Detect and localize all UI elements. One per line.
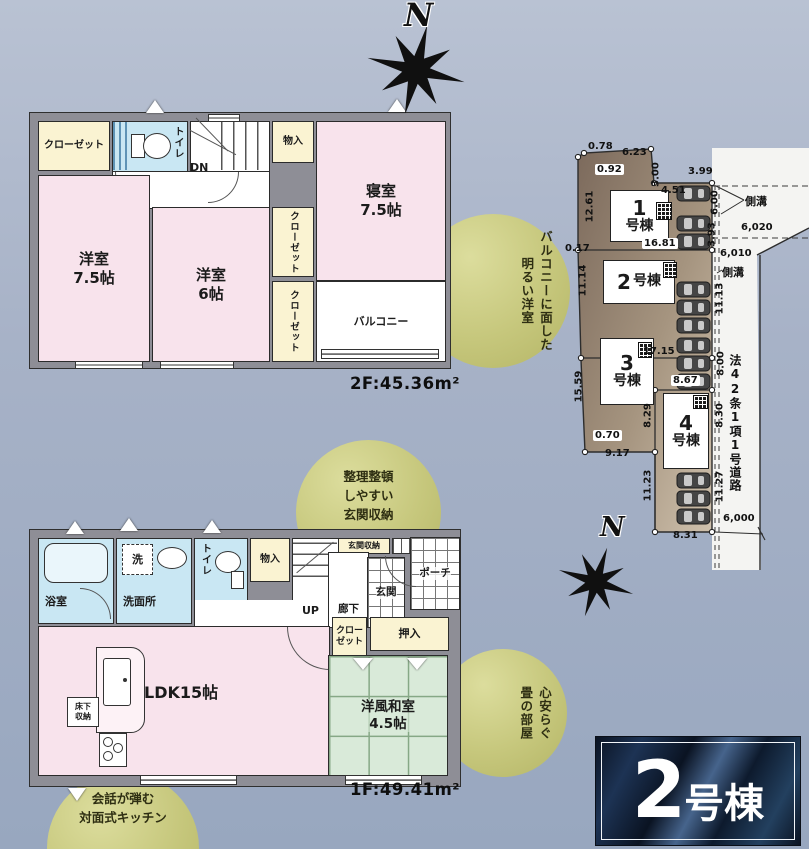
dim-label: 6.23 (622, 147, 647, 158)
callout-kitchen-text: 会話が弾む 対面式キッチン (79, 790, 167, 828)
fridge-icon (103, 658, 131, 706)
floor1-ldk: LDK15帖 床下 収納 (38, 626, 330, 776)
room-label: クローゼット (44, 140, 104, 153)
floor2-plan: クローゼット トイレ 物入 寝室 7.5帖 DN 洋室 7.5帖 洋室 6帖 (30, 113, 450, 368)
dim-label: 0.78 (588, 141, 613, 152)
kitchen-counter-icon (96, 647, 145, 733)
roof-vent-icon (146, 100, 164, 113)
dim-label: 8.29 (643, 399, 654, 433)
floor2-storage: 物入 (272, 121, 314, 163)
room-label: 洋室 6帖 (196, 266, 226, 304)
fridge-handle-icon (123, 678, 127, 682)
compass-north-label: N (600, 512, 625, 543)
floor1-plan: 浴室 洗 洗面所 トイレ 物入 UP 玄関収納 廊下 (30, 530, 460, 786)
burner-icon (103, 751, 113, 761)
floor1-washitsu: 洋風和室 4.5帖 (328, 655, 448, 776)
room-label: 廊下 (338, 603, 359, 616)
toilet-bowl-icon (143, 133, 171, 159)
building-suffix: 号棟 (672, 434, 700, 449)
compass-star (552, 536, 644, 623)
roof-vent-icon (120, 518, 138, 531)
dim-label: 8.31 (673, 530, 698, 541)
stair-steps-icon (221, 122, 269, 170)
building-number: 1 (633, 198, 647, 219)
flyer-canvas: N バルコニーに面した 明るい洋室 整理整頓 しやすい 玄関収納 心安らぐ 畳の… (0, 0, 809, 849)
gutter-label: 側溝 (745, 193, 767, 209)
building-suffix: 号棟 (626, 219, 654, 234)
floor-storage-box: 床下 収納 (67, 697, 99, 727)
room-label: クローゼット (287, 290, 299, 353)
building-hatch-icon (663, 262, 677, 278)
floor2-closet-1: クローゼット (38, 121, 110, 171)
room-label: 床下 収納 (75, 702, 91, 721)
room-label: 物入 (283, 136, 303, 149)
floor1-storage: 物入 (250, 538, 290, 582)
floor1-closet: クロー ゼット (332, 617, 367, 657)
road-edge (757, 228, 809, 570)
room-label: 洋室 7.5帖 (73, 250, 115, 288)
room-label: トイレ (198, 543, 211, 576)
callout-entrance-storage-text: 整理整頓 しやすい 玄関収納 (343, 468, 393, 524)
washing-machine-icon: 洗 (122, 544, 153, 575)
roof-vent-icon (66, 521, 84, 534)
gutter-label: 側溝 (722, 264, 744, 280)
dim-label: 6,020 (741, 222, 773, 233)
dim-label: 12.61 (585, 190, 596, 224)
burner-icon (103, 737, 113, 747)
building-number: 3 (620, 353, 634, 374)
roof-vent-icon (203, 520, 221, 533)
toilet-bowl-icon (215, 551, 241, 573)
floor2-toilet-room: トイレ (112, 121, 188, 173)
dim-label: 0.92 (595, 164, 624, 175)
badge-border (601, 742, 795, 840)
floor1-oshiire: 押入 (370, 617, 449, 651)
floor1-washroom: 洗 洗面所 (116, 538, 192, 624)
callout-bright-room-text: バルコニーに面した 明るい洋室 (517, 227, 555, 355)
room-label: バルコニー (354, 315, 409, 329)
road-name-label: 法42条1項1号道路 (727, 354, 744, 504)
dim-label: 11.23 (643, 469, 654, 503)
dim-label: 3.00 (651, 158, 662, 192)
closet-door-marker-icon (407, 658, 427, 670)
dim-label: 3.99 (688, 166, 713, 177)
dim-label: 0.70 (593, 430, 622, 441)
floor2-closet-2: クローゼット (272, 207, 314, 277)
building-suffix: 号棟 (633, 274, 661, 289)
washer-label: 洗 (132, 553, 143, 567)
shelf-stripes-icon (113, 122, 127, 170)
callout-tatami-text: 心安らぐ 畳の部屋 (516, 663, 554, 763)
dim-label: 0.17 (565, 243, 590, 254)
room-label: ポーチ (419, 567, 451, 580)
floor1-bath: 浴室 (38, 538, 114, 624)
dim-label: 6.00 (710, 186, 721, 220)
dim-label: 11.13 (715, 282, 726, 316)
burner-icon (113, 743, 123, 753)
toilet-tank-icon (231, 571, 244, 589)
room-label: 洋風和室 4.5帖 (361, 699, 415, 733)
floor2-dn-label: DN (190, 161, 208, 174)
room-label: 洗面所 (123, 595, 156, 609)
floor2-balcony: バルコニー (316, 281, 446, 362)
window (140, 775, 237, 785)
building-hatch-icon (656, 202, 672, 220)
closet-door-marker-icon (353, 658, 373, 670)
floor1-up-label: UP (302, 604, 319, 617)
building-hatch-icon (693, 395, 708, 409)
floor2-closet-3: クローゼット (272, 281, 314, 362)
building-number-badge: 2 号棟 (596, 737, 800, 845)
room-label: クローゼット (287, 211, 299, 274)
building-number: 4 (679, 413, 693, 434)
room-label: クロー ゼット (336, 626, 363, 648)
room-label: 浴室 (45, 595, 67, 609)
dim-label: 8.00 (716, 347, 727, 381)
dim-label: 11.27 (715, 470, 726, 504)
bathtub-icon (44, 543, 108, 583)
dim-label: 8.67 (671, 375, 700, 386)
compass-north-label: N (404, 0, 433, 34)
dim-label: 3.93 (707, 218, 718, 252)
vent-icon (68, 788, 86, 801)
dim-label: 16.81 (642, 238, 678, 249)
room-label: 玄関収納 (348, 541, 380, 551)
dim-label: 11.14 (578, 264, 589, 298)
dim-label: 4.51 (661, 185, 686, 196)
ldk-label: LDK15帖 (144, 683, 218, 703)
window (208, 114, 240, 122)
dim-label: 9.17 (605, 448, 630, 459)
dim-label: 8.30 (715, 399, 726, 433)
room-label: 寝室 7.5帖 (360, 182, 402, 220)
window (75, 361, 143, 369)
floor1-toilet: トイレ (194, 538, 248, 602)
dim-label: 6,000 (723, 513, 755, 524)
stove-icon (99, 733, 127, 767)
room-label: 玄関 (376, 586, 397, 599)
floor1-porch: ポーチ (410, 537, 460, 610)
room-label: トイレ (171, 126, 184, 159)
room-label: 物入 (260, 554, 280, 567)
dim-label: 15.59 (574, 370, 585, 404)
balcony-railing (321, 349, 439, 359)
floor2-west-room-2: 洋室 6帖 (152, 207, 270, 362)
door-arc-icon (80, 588, 111, 619)
sink-icon (157, 547, 187, 569)
dim-label: 6,010 (720, 248, 752, 259)
floor2-west-room-1: 洋室 7.5帖 (38, 175, 150, 362)
door-arc-icon (208, 172, 239, 203)
floor2-area-label: 2F:45.36m² (300, 374, 460, 393)
building-number: 2 (617, 272, 631, 293)
dim-label: 17.15 (643, 346, 675, 357)
window (160, 361, 234, 369)
floor1-area-label: 1F:49.41m² (300, 780, 460, 799)
building-suffix: 号棟 (613, 374, 641, 389)
door-arc-icon (287, 627, 330, 670)
room-label: 押入 (399, 627, 421, 641)
floor2-bedroom: 寝室 7.5帖 (316, 121, 446, 281)
